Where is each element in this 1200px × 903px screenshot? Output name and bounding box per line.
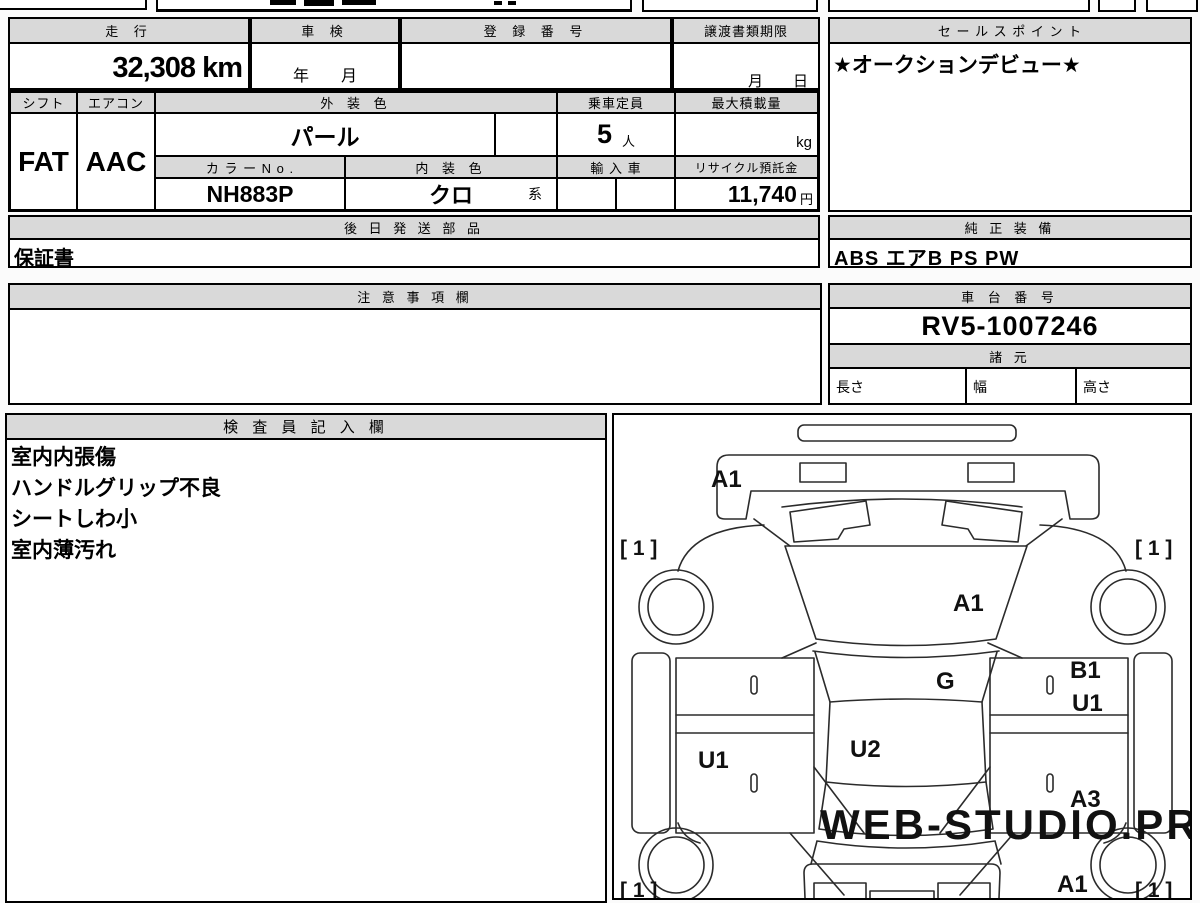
damage-code-tire-front-left: [ 1 ] xyxy=(620,537,657,560)
damage-code-right-door-lower: A3 xyxy=(1070,786,1101,813)
rear-bumper-outline xyxy=(804,864,1000,898)
damage-code-tire-rear-right: [ 1 ] xyxy=(1135,879,1172,898)
sill-left xyxy=(632,653,670,833)
clipped-text-fragment xyxy=(494,1,502,5)
cowl-band xyxy=(813,651,999,658)
mileage-header: 走 行 xyxy=(10,19,248,44)
specs-grid: シフト エアコン 外 装 色 乗車定員 最大積載量 FAT AAC パール 5 … xyxy=(8,90,820,212)
sales-point-header: セ ー ル ス ポ イ ン ト xyxy=(830,19,1190,44)
wiper-left xyxy=(790,501,870,542)
interior-color-value: クロ xyxy=(429,178,473,210)
shipped-parts-header: 後 日 発 送 部 品 xyxy=(10,217,818,240)
front-panel-outline xyxy=(717,455,1099,519)
payload-value-cell: kg xyxy=(675,113,818,156)
wheel-front-right xyxy=(1091,570,1165,644)
pillar-lines xyxy=(815,652,997,702)
clipped-cell xyxy=(0,0,147,10)
transfer-docs-box: 譲渡書類期限 月 日 xyxy=(672,17,820,90)
door-handle xyxy=(751,676,757,694)
damage-code-tire-rear-left: [ 1 ] xyxy=(620,879,657,898)
damage-diagram-box: WEB-STUDIO.PRO A1 [ 1 ] [ 1 ] A1 G B1 U1… xyxy=(612,413,1192,900)
payload-unit: kg xyxy=(796,134,817,155)
equipment-box: 純 正 装 備 ABS エアB PS PW xyxy=(828,215,1192,268)
recycle-header: リサイクル預託金 xyxy=(675,156,818,178)
exterior-color-header: 外 装 色 xyxy=(155,92,557,113)
inspector-note-line: 室内内張傷 xyxy=(11,442,605,473)
clipped-cell xyxy=(828,0,1090,12)
width-cell: 幅 xyxy=(967,369,1077,405)
doors-left xyxy=(676,658,814,833)
clipped-text-fragment xyxy=(508,1,516,5)
car-damage-diagram: WEB-STUDIO.PRO A1 [ 1 ] [ 1 ] A1 G B1 U1… xyxy=(614,415,1190,898)
equipment-value: ABS エアB PS PW xyxy=(830,240,1190,271)
chassis-number: RV5-1007246 xyxy=(830,309,1190,345)
exterior-color-subcell xyxy=(495,113,557,156)
chassis-header: 車 台 番 号 xyxy=(830,285,1190,309)
height-cell: 高さ xyxy=(1077,369,1196,405)
length-cell: 長さ xyxy=(830,369,967,405)
door-handle xyxy=(1047,774,1053,792)
door-beams xyxy=(676,715,1128,733)
rear-bumper-bar xyxy=(870,891,934,898)
chassis-box: 車 台 番 号 RV5-1007246 諸 元 長さ 幅 高さ xyxy=(828,283,1192,405)
damage-code-right-door-top: B1 xyxy=(1070,657,1101,684)
clipped-text-fragment xyxy=(342,0,376,5)
registration-box: 登 録 番 号 xyxy=(400,17,672,90)
damage-code-right-door-upper: U1 xyxy=(1072,690,1103,717)
recycle-value: 11,740 xyxy=(728,181,797,208)
damage-code-roof: U2 xyxy=(850,736,881,763)
recycle-value-cell: 11,740 円 xyxy=(675,178,818,210)
import-value-cell-right xyxy=(616,178,675,210)
auction-sheet-page: { "row1": { "mileage_label": "走 行", "mil… xyxy=(0,0,1200,900)
wheel-front-left xyxy=(639,570,713,644)
capacity-value-cell: 5 人 xyxy=(557,113,675,156)
door-handle xyxy=(751,774,757,792)
clipped-text-fragment xyxy=(270,0,296,5)
sales-point-box: セ ー ル ス ポ イ ン ト ★オークションデビュー★ xyxy=(828,17,1192,212)
watermark: WEB-STUDIO.PRO xyxy=(820,801,1190,848)
clipped-cell xyxy=(1098,0,1136,12)
capacity-unit: 人 xyxy=(622,131,635,150)
wiper-right xyxy=(942,501,1022,542)
shaken-header: 車 検 xyxy=(252,19,398,44)
shaken-box: 車 検 年 月 xyxy=(250,17,400,90)
recycle-unit: 円 xyxy=(800,189,813,208)
interior-color-value-cell: クロ 系 xyxy=(345,178,557,210)
aircon-header: エアコン xyxy=(77,92,155,113)
damage-code-tire-front-right: [ 1 ] xyxy=(1135,537,1172,560)
shift-value: FAT xyxy=(10,113,77,210)
front-bumper xyxy=(798,425,1016,441)
caution-notes-header: 注 意 事 項 欄 xyxy=(10,285,820,310)
transfer-docs-value: 月 日 xyxy=(674,44,818,91)
clipped-text-fragment xyxy=(304,0,334,6)
spec-dims-header: 諸 元 xyxy=(830,345,1190,369)
damage-code-rear-panel: A1 xyxy=(1057,871,1088,898)
import-header: 輸 入 車 xyxy=(557,156,675,178)
clipped-cell xyxy=(156,0,632,12)
shift-header: シフト xyxy=(10,92,77,113)
shipped-parts-value: 保証書 xyxy=(10,240,818,271)
mileage-value: 32,308 km xyxy=(10,44,248,85)
inspector-note-line: ハンドルグリップ不良 xyxy=(11,473,605,504)
color-no-header: カ ラ ー N o . xyxy=(155,156,345,178)
damage-code-left-door: U1 xyxy=(698,747,729,774)
wheel-front-left-inner xyxy=(648,579,704,635)
color-no-value: NH883P xyxy=(155,178,345,210)
damage-code-front-panel: A1 xyxy=(711,466,742,493)
shipped-parts-box: 後 日 発 送 部 品 保証書 xyxy=(8,215,820,268)
door-handle xyxy=(1047,676,1053,694)
wheel-front-right-inner xyxy=(1100,579,1156,635)
inspector-note-line: シートしわ小 xyxy=(11,504,605,535)
front-fender-arcs xyxy=(678,525,1126,571)
transfer-docs-header: 譲渡書類期限 xyxy=(674,19,818,44)
shaken-value: 年 月 xyxy=(252,44,398,86)
damage-code-windshield: A1 xyxy=(953,590,984,617)
interior-color-header: 内 装 色 xyxy=(345,156,557,178)
payload-header: 最大積載量 xyxy=(675,92,818,113)
capacity-header: 乗車定員 xyxy=(557,92,675,113)
exterior-color-value: パール xyxy=(155,113,495,156)
inspector-notes-header: 検 査 員 記 入 欄 xyxy=(7,415,605,440)
clipped-cell xyxy=(1146,0,1198,12)
windshield-outline xyxy=(785,546,1027,646)
interior-color-suffix: 系 xyxy=(528,184,542,204)
equipment-header: 純 正 装 備 xyxy=(830,217,1190,240)
cowl-arc xyxy=(782,499,1022,507)
aircon-value: AAC xyxy=(77,113,155,210)
capacity-value: 5 xyxy=(597,119,612,150)
headlight-right xyxy=(968,463,1014,482)
import-value-cell-left xyxy=(557,178,616,210)
registration-header: 登 録 番 号 xyxy=(402,19,670,44)
inspector-notes-box: 検 査 員 記 入 欄 室内内張傷 ハンドルグリップ不良 シートしわ小 室内薄汚… xyxy=(5,413,607,903)
sales-point-value: ★オークションデビュー★ xyxy=(830,44,1190,84)
damage-code-cowl: G xyxy=(936,668,955,695)
clipped-cell xyxy=(642,0,818,12)
caution-notes-box: 注 意 事 項 欄 xyxy=(8,283,822,405)
inspector-note-line: 室内薄汚れ xyxy=(11,535,605,566)
mileage-box: 走 行 32,308 km xyxy=(8,17,250,90)
headlight-left xyxy=(800,463,846,482)
